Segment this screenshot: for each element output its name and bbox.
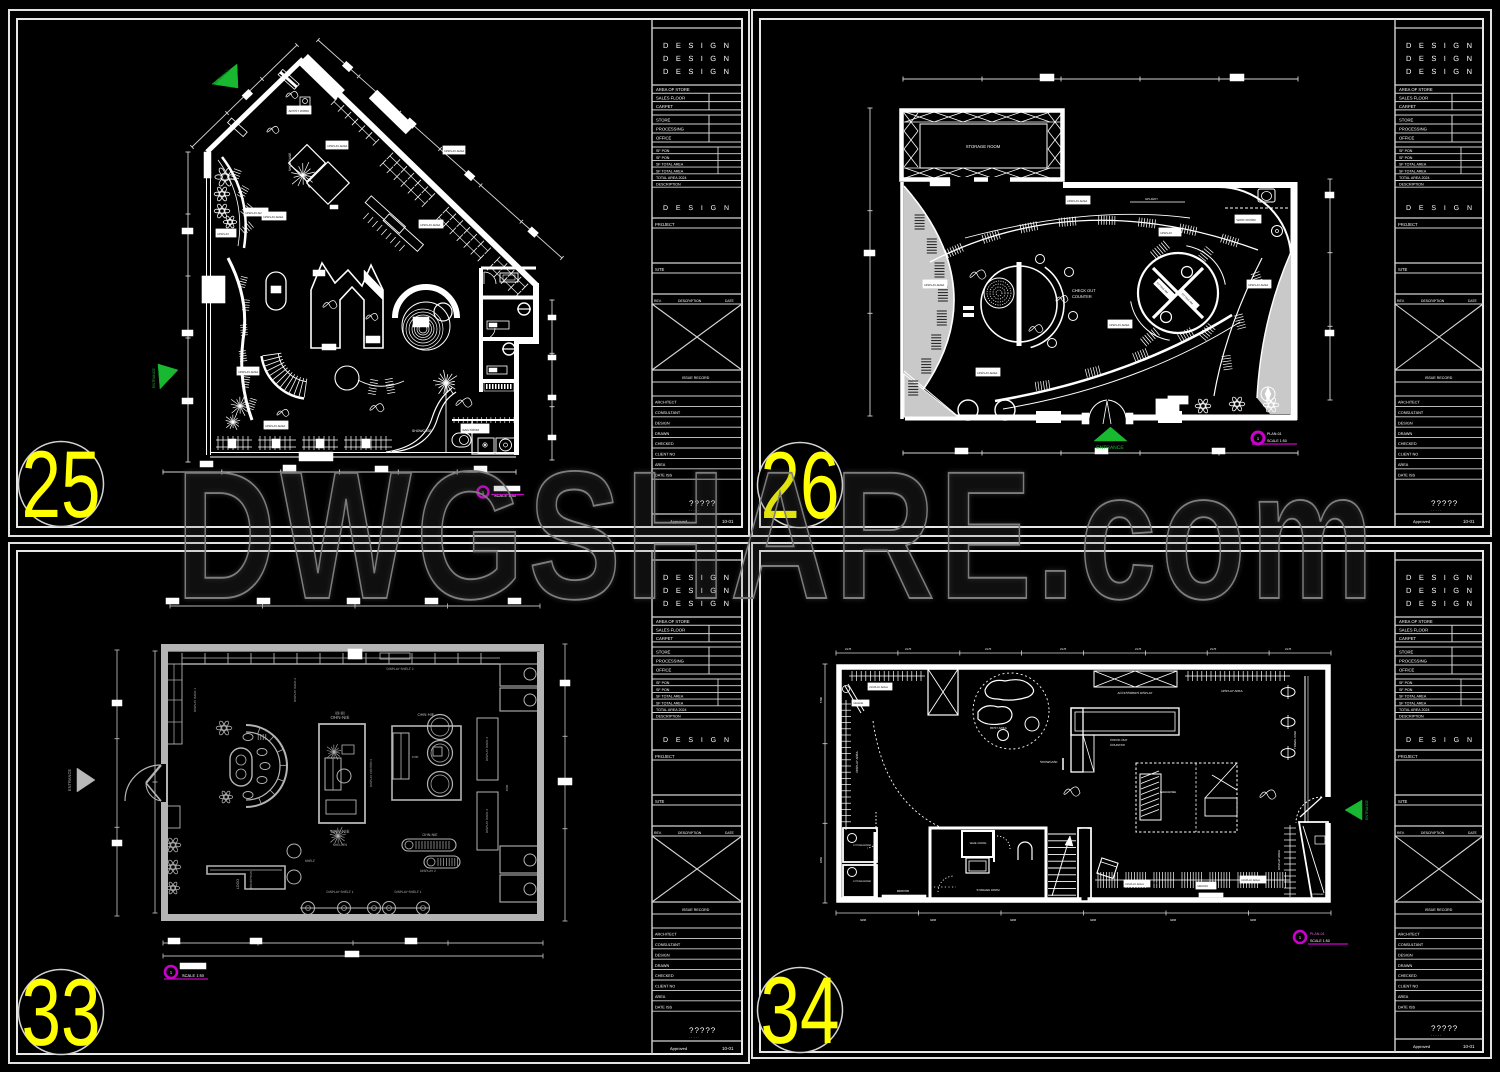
svg-text:DISPLAY AREA: DISPLAY AREA bbox=[1068, 199, 1088, 203]
svg-text:DATE ISS: DATE ISS bbox=[1398, 473, 1415, 477]
svg-text:34: 34 bbox=[761, 958, 840, 1064]
svg-text:SF PON: SF PON bbox=[656, 156, 670, 160]
svg-text:AREA OF STORE: AREA OF STORE bbox=[656, 87, 690, 92]
svg-text:CLIENT NO: CLIENT NO bbox=[1398, 985, 1418, 989]
svg-text:5780: 5780 bbox=[819, 696, 823, 703]
svg-text:DRAWN: DRAWN bbox=[1398, 964, 1412, 968]
svg-text:3460: 3460 bbox=[860, 918, 867, 922]
svg-text:CHECKED: CHECKED bbox=[1398, 974, 1417, 978]
svg-text:ISSUE RECORD: ISSUE RECORD bbox=[682, 376, 710, 380]
svg-text:DISPLAY AREA: DISPLAY AREA bbox=[1277, 850, 1281, 870]
svg-text:ENTRANCE: ENTRANCE bbox=[1365, 800, 1369, 820]
svg-text:|||||-|||||: |||||-||||| bbox=[335, 711, 345, 715]
svg-text:DISPLAY AREA: DISPLAY AREA bbox=[870, 686, 889, 689]
svg-text:PROCESSING: PROCESSING bbox=[656, 127, 684, 132]
svg-text:SITE: SITE bbox=[1398, 799, 1408, 804]
svg-text:REV.: REV. bbox=[1397, 299, 1405, 303]
svg-text:CONSULTANT: CONSULTANT bbox=[655, 411, 681, 415]
svg-text:PROJECT: PROJECT bbox=[1398, 222, 1418, 227]
svg-text:MIRROR: MIRROR bbox=[1198, 885, 1209, 888]
svg-text:3460: 3460 bbox=[1250, 918, 1257, 922]
svg-text:Approved: Approved bbox=[1413, 519, 1430, 524]
svg-text:25: 25 bbox=[22, 432, 101, 538]
svg-text:SF PON: SF PON bbox=[1399, 156, 1413, 160]
svg-text:ARCHITECT: ARCHITECT bbox=[655, 401, 677, 405]
svg-text:SF TOTAL AREA: SF TOTAL AREA bbox=[656, 701, 684, 705]
svg-text:DESIGN: DESIGN bbox=[1398, 953, 1413, 957]
svg-text:SF PON: SF PON bbox=[1399, 688, 1413, 692]
svg-text:SCALE 1:50: SCALE 1:50 bbox=[1310, 939, 1330, 943]
svg-text:OHN-NIE: OHN-NIE bbox=[422, 833, 438, 837]
svg-text:Approved: Approved bbox=[1413, 1044, 1430, 1049]
svg-text:Approved: Approved bbox=[670, 1046, 687, 1051]
svg-text:RECEPTION: RECEPTION bbox=[249, 871, 253, 889]
svg-text:3460: 3460 bbox=[1170, 918, 1177, 922]
svg-text:DISPLAY RACK 3: DISPLAY RACK 3 bbox=[485, 809, 489, 833]
svg-text:ARCHITECT: ARCHITECT bbox=[1398, 933, 1420, 937]
svg-text:SHOWCASE: SHOWCASE bbox=[288, 153, 292, 172]
svg-text:SF PON: SF PON bbox=[656, 681, 670, 685]
svg-text:DISPLAY SHELF 1: DISPLAY SHELF 1 bbox=[395, 890, 422, 894]
svg-text:SF TOTAL AREA: SF TOTAL AREA bbox=[1399, 169, 1427, 173]
svg-text:COUNTER: COUNTER bbox=[1072, 294, 1092, 299]
svg-text:REST AREA: REST AREA bbox=[990, 726, 1007, 730]
svg-text:2170: 2170 bbox=[1285, 647, 1292, 651]
svg-text:DISPLAY: DISPLAY bbox=[218, 232, 230, 236]
svg-text:4500: 4500 bbox=[412, 755, 419, 759]
svg-text:CLIENT NO: CLIENT NO bbox=[655, 985, 675, 989]
svg-text:ARCHITECT: ARCHITECT bbox=[655, 933, 677, 937]
svg-text:OHN-HIE: OHN-HIE bbox=[418, 712, 435, 717]
svg-text:ARCHITECT: ARCHITECT bbox=[1398, 401, 1420, 405]
svg-text:2170: 2170 bbox=[985, 647, 992, 651]
svg-text:DATE: DATE bbox=[1468, 831, 1478, 835]
svg-text:WASH ROOM: WASH ROOM bbox=[1237, 218, 1257, 222]
svg-text:ISSUE RECORD: ISSUE RECORD bbox=[682, 908, 710, 912]
svg-text:REV.: REV. bbox=[654, 831, 662, 835]
svg-text:ISSUE RECORD: ISSUE RECORD bbox=[1425, 376, 1453, 380]
svg-text:REV.: REV. bbox=[654, 299, 662, 303]
svg-text:33: 33 bbox=[22, 960, 101, 1066]
svg-text:SHELF: SHELF bbox=[305, 859, 315, 863]
svg-text:AREA OF STORE: AREA OF STORE bbox=[1399, 619, 1433, 624]
svg-text:MIRROR: MIRROR bbox=[897, 889, 910, 893]
svg-text:ISSUE RECORD: ISSUE RECORD bbox=[1425, 908, 1453, 912]
svg-text:ACCESSORIES DISPLAY: ACCESSORIES DISPLAY bbox=[1118, 691, 1153, 695]
svg-text:DESCRIPTION: DESCRIPTION bbox=[678, 831, 702, 835]
svg-text:DISPLAY AREA: DISPLAY AREA bbox=[421, 223, 441, 227]
svg-text:3460: 3460 bbox=[930, 918, 937, 922]
svg-text:DISPLAY AREA: DISPLAY AREA bbox=[445, 149, 465, 153]
svg-text:3460: 3460 bbox=[1090, 918, 1097, 922]
svg-text:DATE ISS: DATE ISS bbox=[655, 1005, 672, 1009]
svg-text:OFFICE: OFFICE bbox=[1399, 136, 1415, 141]
svg-text:DRAWN: DRAWN bbox=[655, 964, 669, 968]
svg-text:AREA: AREA bbox=[655, 995, 666, 999]
svg-text:SF TOTAL AREA: SF TOTAL AREA bbox=[1399, 163, 1427, 167]
svg-text:SHELVES: SHELVES bbox=[333, 843, 347, 847]
svg-text:STORAGE ROOM: STORAGE ROOM bbox=[976, 888, 1000, 892]
svg-text:TOTAL AREA 2024: TOTAL AREA 2024 bbox=[656, 176, 687, 180]
svg-text:ENTRANCE: ENTRANCE bbox=[67, 769, 72, 791]
svg-text:PROJECT: PROJECT bbox=[655, 222, 675, 227]
svg-text:ENTRANCE: ENTRANCE bbox=[152, 368, 156, 388]
svg-text:CONSULTANT: CONSULTANT bbox=[1398, 943, 1424, 947]
svg-text:CARPET: CARPET bbox=[1399, 104, 1416, 109]
svg-text:OFFICE: OFFICE bbox=[656, 668, 672, 673]
svg-text:DESIGN: DESIGN bbox=[1398, 421, 1413, 425]
svg-text:DESCRIPTION: DESCRIPTION bbox=[1399, 183, 1424, 187]
svg-text:SF PON: SF PON bbox=[656, 688, 670, 692]
svg-text:2170: 2170 bbox=[1135, 647, 1142, 651]
svg-text:REV.: REV. bbox=[1397, 831, 1405, 835]
svg-text:10-01: 10-01 bbox=[1463, 519, 1475, 524]
svg-text:DISPLAY AREA: DISPLAY AREA bbox=[1126, 883, 1145, 886]
svg-text:DISPLAY AREA: DISPLAY AREA bbox=[978, 371, 998, 375]
svg-text:SF PON: SF PON bbox=[656, 149, 670, 153]
svg-text:AREA OF STORE: AREA OF STORE bbox=[1399, 87, 1433, 92]
svg-text:DATE ISS: DATE ISS bbox=[1398, 1005, 1415, 1009]
svg-text:LOGO: LOGO bbox=[236, 879, 240, 890]
svg-text:SITE: SITE bbox=[655, 799, 665, 804]
svg-text:4500: 4500 bbox=[505, 784, 509, 791]
svg-text:SALES FLOOR: SALES FLOOR bbox=[1399, 96, 1428, 101]
svg-text:. . . . .: . . . . . bbox=[1431, 507, 1441, 512]
svg-text:DISPLAY AREA: DISPLAY AREA bbox=[239, 370, 259, 374]
svg-text:SALES FLOOR: SALES FLOOR bbox=[1399, 628, 1428, 633]
svg-text:PROJECT: PROJECT bbox=[1398, 754, 1418, 759]
svg-text:DESCRIPTION: DESCRIPTION bbox=[656, 183, 681, 187]
svg-text:DATE: DATE bbox=[725, 299, 735, 303]
svg-text:DISPLAY 2: DISPLAY 2 bbox=[420, 869, 436, 873]
svg-text:STORE: STORE bbox=[1399, 650, 1414, 655]
svg-text:DESCRIPTION: DESCRIPTION bbox=[678, 299, 702, 303]
svg-text:DESIGN: DESIGN bbox=[655, 421, 670, 425]
svg-text:10-01: 10-01 bbox=[722, 1046, 734, 1051]
svg-text:PLAN-01: PLAN-01 bbox=[1310, 932, 1325, 936]
svg-text:TRAVEL KIND: TRAVEL KIND bbox=[1293, 731, 1297, 749]
svg-text:TOTAL AREA 2024: TOTAL AREA 2024 bbox=[656, 708, 687, 712]
svg-text:2170: 2170 bbox=[1060, 647, 1067, 651]
svg-text:CHECKED: CHECKED bbox=[1398, 442, 1417, 446]
svg-text:PROJECT: PROJECT bbox=[655, 754, 675, 759]
svg-text:SF TOTAL AREA: SF TOTAL AREA bbox=[656, 695, 684, 699]
svg-text:FITTING ROOM: FITTING ROOM bbox=[853, 844, 870, 847]
svg-text:TOTAL AREA 2024: TOTAL AREA 2024 bbox=[1399, 176, 1430, 180]
svg-text:SF TOTAL AREA: SF TOTAL AREA bbox=[1399, 695, 1427, 699]
svg-text:OFFICE: OFFICE bbox=[656, 136, 672, 141]
svg-text:2170: 2170 bbox=[1210, 647, 1217, 651]
svg-text:DISPLAY AREA: DISPLAY AREA bbox=[264, 215, 284, 219]
svg-text:DISPLAY AREA: DISPLAY AREA bbox=[1110, 323, 1130, 327]
svg-text:STORE: STORE bbox=[1399, 118, 1414, 123]
svg-text:CHECK OUT: CHECK OUT bbox=[1072, 288, 1096, 293]
svg-text:CONSULTANT: CONSULTANT bbox=[655, 943, 681, 947]
svg-text:COUNTER: COUNTER bbox=[1110, 743, 1126, 747]
svg-text:CHECK OUT: CHECK OUT bbox=[1110, 738, 1128, 742]
svg-text:CARPET: CARPET bbox=[656, 104, 673, 109]
svg-text:SF TOTAL AREA: SF TOTAL AREA bbox=[656, 169, 684, 173]
svg-text:AREA: AREA bbox=[1398, 995, 1409, 999]
svg-text:DISPLAY: DISPLAY bbox=[1161, 231, 1173, 235]
svg-text:DISPLAY AREA: DISPLAY AREA bbox=[855, 751, 859, 772]
svg-text:3250: 3250 bbox=[819, 856, 823, 863]
svg-text:SITE: SITE bbox=[1398, 267, 1408, 272]
svg-text:OHN-NIE: OHN-NIE bbox=[331, 829, 350, 834]
svg-text:SF PON: SF PON bbox=[1399, 681, 1413, 685]
svg-text:DESCRIPTION: DESCRIPTION bbox=[1399, 715, 1424, 719]
svg-text:STORAGE: STORAGE bbox=[1312, 893, 1324, 896]
svg-text:DESIGN: DESIGN bbox=[655, 953, 670, 957]
svg-text:SALES FLOOR: SALES FLOOR bbox=[656, 96, 685, 101]
svg-text:DISPLAY AREA: DISPLAY AREA bbox=[1249, 283, 1269, 287]
svg-text:PROCESSING: PROCESSING bbox=[1399, 127, 1427, 132]
svg-text:DISPLAY RACK 1: DISPLAY RACK 1 bbox=[193, 688, 197, 712]
svg-text:CARPET: CARPET bbox=[1399, 636, 1416, 641]
svg-text:10-01: 10-01 bbox=[1463, 1044, 1475, 1049]
svg-text:STORE: STORE bbox=[656, 118, 671, 123]
svg-text:DWGSHARE.com: DWGSHARE.com bbox=[176, 433, 1378, 637]
svg-text:. . . . .: . . . . . bbox=[689, 1034, 699, 1039]
svg-text:DISPLAY AREA: DISPLAY AREA bbox=[1242, 879, 1261, 882]
svg-text:DISPLAY SHELF 2: DISPLAY SHELF 2 bbox=[387, 667, 414, 671]
svg-text:SF TOTAL AREA: SF TOTAL AREA bbox=[656, 163, 684, 167]
svg-text:SF TOTAL AREA: SF TOTAL AREA bbox=[1399, 701, 1427, 705]
svg-text:DISPLAY RACK 3: DISPLAY RACK 3 bbox=[485, 737, 489, 761]
svg-text:DISPLAY SHELF 1: DISPLAY SHELF 1 bbox=[327, 890, 354, 894]
svg-text:CHECKED: CHECKED bbox=[655, 974, 674, 978]
svg-text:DISPLAY AREA: DISPLAY AREA bbox=[1221, 689, 1242, 693]
svg-text:BAG ROOM: BAG ROOM bbox=[463, 428, 480, 432]
svg-text:SITE: SITE bbox=[655, 267, 665, 272]
svg-text:STORAGE ROOM: STORAGE ROOM bbox=[966, 144, 1001, 149]
svg-text:DESCRIPTION: DESCRIPTION bbox=[1421, 831, 1445, 835]
svg-text:PROCESSING: PROCESSING bbox=[656, 659, 684, 664]
svg-text:2170: 2170 bbox=[905, 647, 912, 651]
svg-text:DATE: DATE bbox=[1468, 299, 1478, 303]
svg-text:WASH ROOM: WASH ROOM bbox=[970, 842, 986, 845]
svg-text:2170: 2170 bbox=[845, 647, 852, 651]
svg-text:DESCRIPTION: DESCRIPTION bbox=[1421, 299, 1445, 303]
svg-text:DATE: DATE bbox=[725, 831, 735, 835]
svg-text:DISPLAY AREA: DISPLAY AREA bbox=[925, 283, 945, 287]
svg-text:DISPLAY AREA: DISPLAY AREA bbox=[328, 144, 348, 148]
svg-text:OHN-NIE: OHN-NIE bbox=[331, 715, 350, 720]
svg-text:STORE: STORE bbox=[656, 650, 671, 655]
svg-text:CONSULTANT: CONSULTANT bbox=[1398, 411, 1424, 415]
svg-text:ARTIST WORK: ARTIST WORK bbox=[289, 109, 310, 113]
svg-text:OFFICE: OFFICE bbox=[1399, 668, 1415, 673]
svg-text:DISPLAY CENTER 2: DISPLAY CENTER 2 bbox=[369, 759, 373, 787]
svg-text:3460: 3460 bbox=[1010, 918, 1017, 922]
svg-text:SF PON: SF PON bbox=[1399, 149, 1413, 153]
svg-text:CLIENT NO: CLIENT NO bbox=[1398, 453, 1418, 457]
svg-text:AREA: AREA bbox=[1398, 463, 1409, 467]
svg-text:FITTING ROOM: FITTING ROOM bbox=[853, 880, 870, 883]
svg-text:PROCESSING: PROCESSING bbox=[1399, 659, 1427, 664]
svg-text:DISPLAY AREA: DISPLAY AREA bbox=[266, 424, 286, 428]
svg-text:SHOWCASE: SHOWCASE bbox=[1040, 760, 1058, 764]
svg-text:WARDROBE: WARDROBE bbox=[1160, 790, 1177, 794]
svg-text:. . . . .: . . . . . bbox=[1431, 1032, 1441, 1037]
svg-text:DRAWN: DRAWN bbox=[1398, 432, 1412, 436]
svg-text:SCALE 1:50: SCALE 1:50 bbox=[182, 973, 205, 978]
svg-text:UPLIGHT: UPLIGHT bbox=[1145, 197, 1158, 201]
svg-text:DESCRIPTION: DESCRIPTION bbox=[656, 715, 681, 719]
svg-text:DISPLAY RACK 2: DISPLAY RACK 2 bbox=[293, 678, 297, 702]
svg-text:TOTAL AREA 2024: TOTAL AREA 2024 bbox=[1399, 708, 1430, 712]
svg-text:MIRROR: MIRROR bbox=[854, 702, 864, 705]
